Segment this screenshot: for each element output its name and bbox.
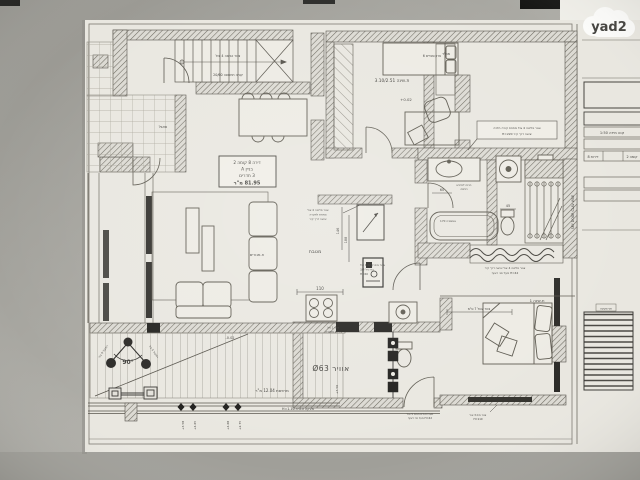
floorplan-svg: דירה 8 קומה 2 בניין A 3 חדרים 81.95 מ"ר xyxy=(0,0,640,480)
floorplan-photo: דירה 8 קומה 2 בניין A 3 חדרים 81.95 מ"ר xyxy=(0,0,640,480)
photo-vignette xyxy=(0,0,640,480)
